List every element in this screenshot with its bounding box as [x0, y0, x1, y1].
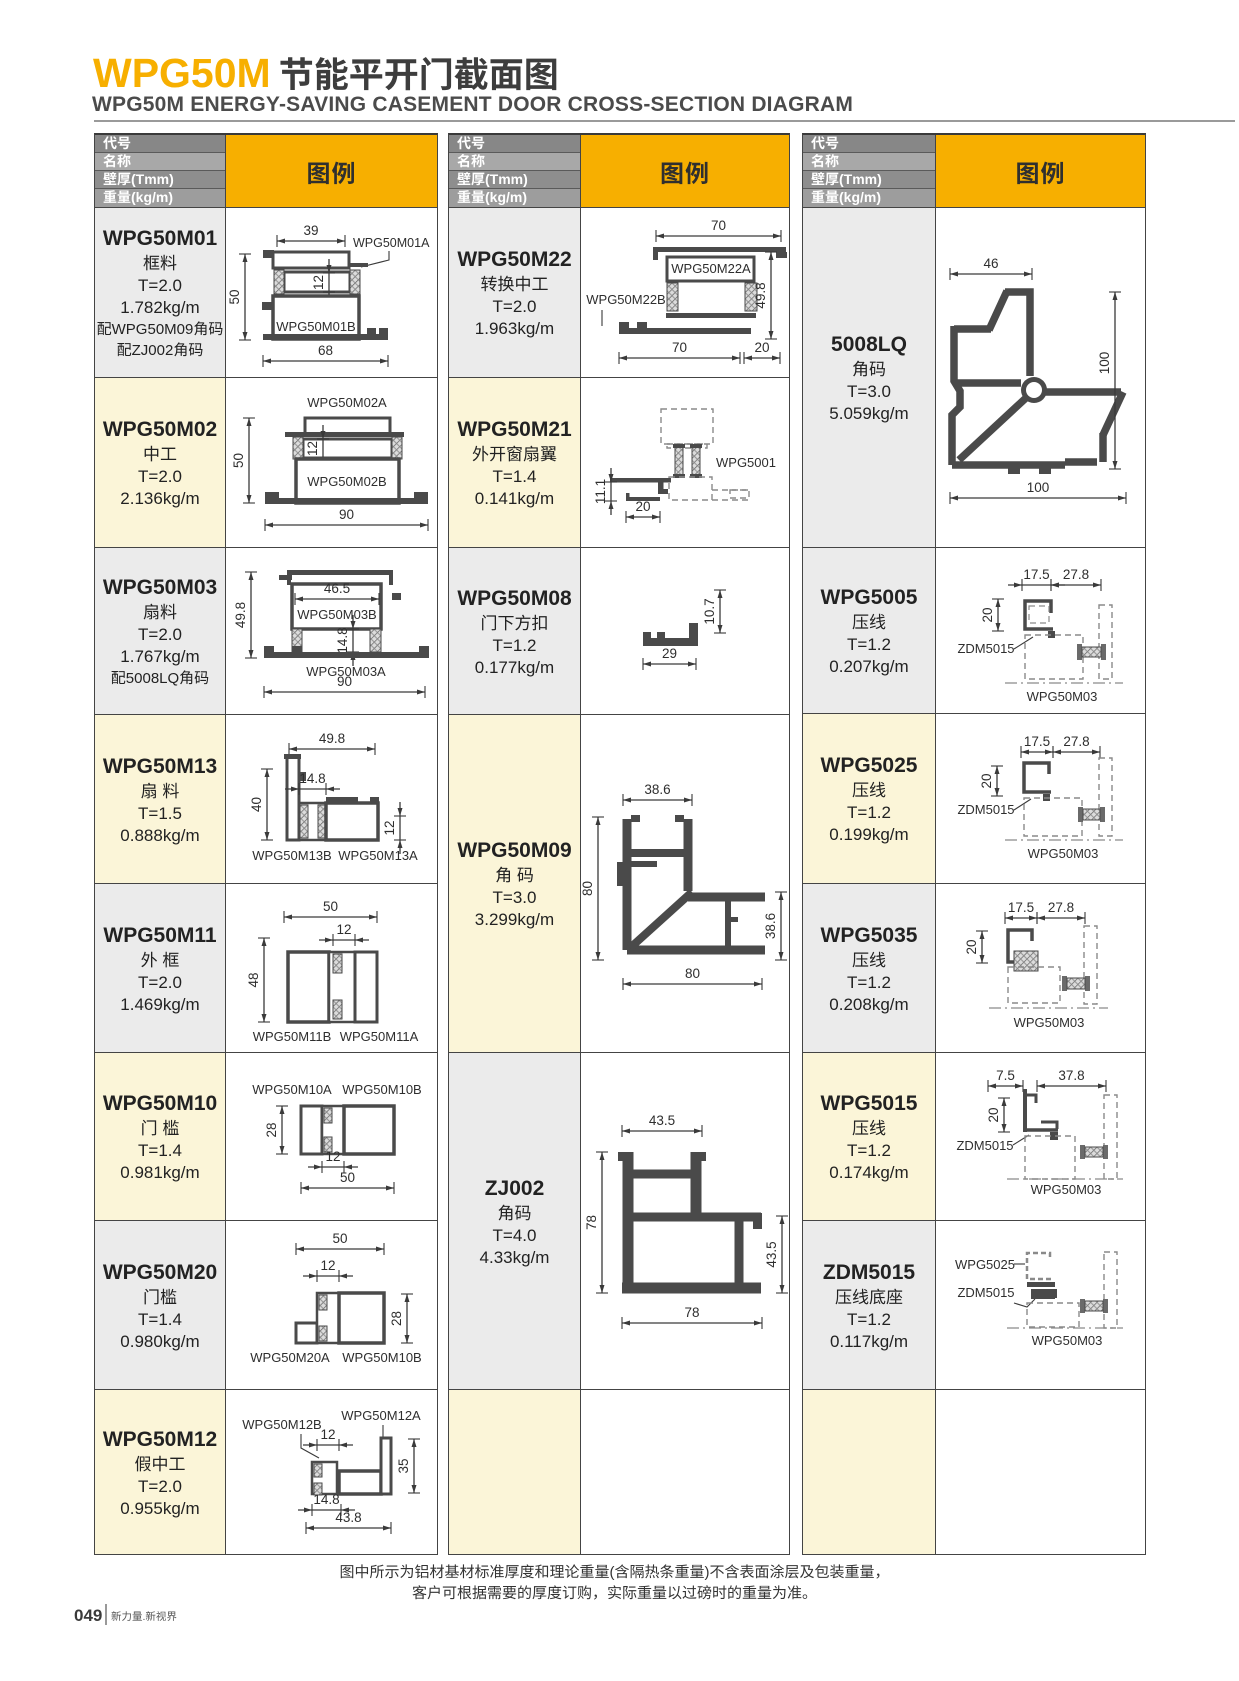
- svg-text:17.5: 17.5: [1023, 567, 1049, 582]
- svg-text:20: 20: [986, 1107, 1001, 1122]
- svg-text:28: 28: [389, 1311, 404, 1326]
- svg-text:17.5: 17.5: [1008, 900, 1034, 915]
- svg-text:WPG50M03: WPG50M03: [1028, 846, 1099, 861]
- svg-text:WPG50M11A: WPG50M11A: [340, 1029, 419, 1044]
- svg-text:70: 70: [711, 218, 726, 233]
- svg-text:80: 80: [685, 966, 700, 981]
- svg-text:10.7: 10.7: [702, 598, 717, 624]
- svg-text:WPG50M03: WPG50M03: [1031, 1182, 1102, 1197]
- svg-text:49.8: 49.8: [319, 731, 345, 746]
- svg-text:20: 20: [979, 773, 994, 788]
- svg-text:40: 40: [249, 797, 264, 812]
- svg-text:90: 90: [337, 674, 352, 689]
- svg-text:49.8: 49.8: [753, 282, 768, 308]
- svg-text:70: 70: [672, 340, 687, 355]
- svg-text:20: 20: [964, 939, 979, 954]
- svg-text:WPG50M03: WPG50M03: [1032, 1333, 1103, 1348]
- svg-text:46: 46: [983, 256, 998, 271]
- svg-text:ZDM5015: ZDM5015: [957, 641, 1014, 656]
- svg-text:43.5: 43.5: [764, 1241, 779, 1267]
- svg-text:50: 50: [332, 1231, 347, 1246]
- svg-text:100: 100: [1027, 480, 1050, 495]
- svg-text:WPG50M02A: WPG50M02A: [307, 395, 387, 410]
- svg-text:20: 20: [980, 607, 995, 622]
- svg-text:27.8: 27.8: [1048, 900, 1074, 915]
- svg-text:WPG50M12B: WPG50M12B: [242, 1417, 321, 1432]
- svg-text:100: 100: [1097, 352, 1112, 375]
- svg-text:11.1: 11.1: [593, 479, 608, 504]
- svg-text:38.6: 38.6: [763, 913, 778, 939]
- svg-text:WPG50M03B: WPG50M03B: [297, 607, 376, 622]
- svg-text:20: 20: [635, 499, 650, 514]
- svg-text:WPG50M03: WPG50M03: [1014, 1015, 1085, 1030]
- svg-text:12: 12: [305, 441, 320, 456]
- svg-text:14.8: 14.8: [335, 627, 350, 653]
- svg-text:WPG50M10A: WPG50M10A: [252, 1082, 332, 1097]
- svg-text:WPG50M01B: WPG50M01B: [276, 319, 355, 334]
- svg-text:12: 12: [311, 275, 326, 290]
- svg-text:50: 50: [340, 1170, 355, 1185]
- svg-text:27.8: 27.8: [1063, 567, 1089, 582]
- svg-text:12: 12: [320, 1258, 335, 1273]
- svg-text:WPG50M12A: WPG50M12A: [341, 1408, 421, 1423]
- svg-text:68: 68: [318, 343, 333, 358]
- svg-text:12: 12: [320, 1427, 335, 1442]
- svg-text:28: 28: [264, 1122, 279, 1137]
- svg-text:WPG50M13B: WPG50M13B: [252, 848, 331, 863]
- svg-text:35: 35: [396, 1458, 411, 1473]
- svg-text:29: 29: [662, 646, 677, 661]
- svg-text:39: 39: [303, 223, 318, 238]
- svg-text:WPG5001: WPG5001: [716, 455, 776, 470]
- svg-text:WPG50M11B: WPG50M11B: [253, 1029, 332, 1044]
- svg-text:46.5: 46.5: [324, 581, 350, 596]
- svg-text:27.8: 27.8: [1063, 734, 1089, 749]
- svg-text:WPG50M13A: WPG50M13A: [338, 848, 418, 863]
- svg-text:48: 48: [246, 972, 261, 987]
- svg-text:50: 50: [323, 899, 338, 914]
- svg-text:WPG50M01A: WPG50M01A: [353, 236, 430, 250]
- svg-text:WPG50M10B: WPG50M10B: [342, 1082, 421, 1097]
- svg-text:ZDM5015: ZDM5015: [956, 1138, 1013, 1153]
- svg-text:38.6: 38.6: [644, 782, 670, 797]
- svg-text:WPG5025: WPG5025: [955, 1257, 1015, 1272]
- svg-text:14.8: 14.8: [313, 1492, 339, 1507]
- svg-text:43.5: 43.5: [649, 1113, 675, 1128]
- svg-text:WPG50M20A: WPG50M20A: [250, 1350, 330, 1365]
- svg-text:49.8: 49.8: [233, 602, 248, 628]
- svg-text:50: 50: [231, 453, 246, 468]
- svg-text:7.5: 7.5: [996, 1068, 1015, 1083]
- svg-text:WPG50M22A: WPG50M22A: [671, 261, 751, 276]
- svg-text:WPG50M10B: WPG50M10B: [342, 1350, 421, 1365]
- svg-text:14.8: 14.8: [299, 771, 325, 786]
- svg-text:ZDM5015: ZDM5015: [957, 1285, 1014, 1300]
- svg-text:12: 12: [325, 1149, 340, 1164]
- svg-text:80: 80: [581, 881, 595, 896]
- svg-text:43.8: 43.8: [335, 1510, 361, 1525]
- svg-text:12: 12: [336, 922, 351, 937]
- svg-text:37.8: 37.8: [1058, 1068, 1084, 1083]
- svg-text:20: 20: [754, 340, 769, 355]
- svg-text:90: 90: [339, 507, 354, 522]
- svg-text:12: 12: [382, 820, 397, 835]
- svg-text:78: 78: [584, 1215, 599, 1230]
- svg-text:78: 78: [684, 1305, 699, 1320]
- svg-text:50: 50: [227, 289, 242, 304]
- svg-text:WPG50M02B: WPG50M02B: [307, 474, 386, 489]
- svg-text:WPG50M03: WPG50M03: [1027, 689, 1098, 704]
- svg-text:ZDM5015: ZDM5015: [957, 802, 1014, 817]
- svg-text:WPG50M22B: WPG50M22B: [586, 292, 665, 307]
- svg-text:17.5: 17.5: [1024, 734, 1050, 749]
